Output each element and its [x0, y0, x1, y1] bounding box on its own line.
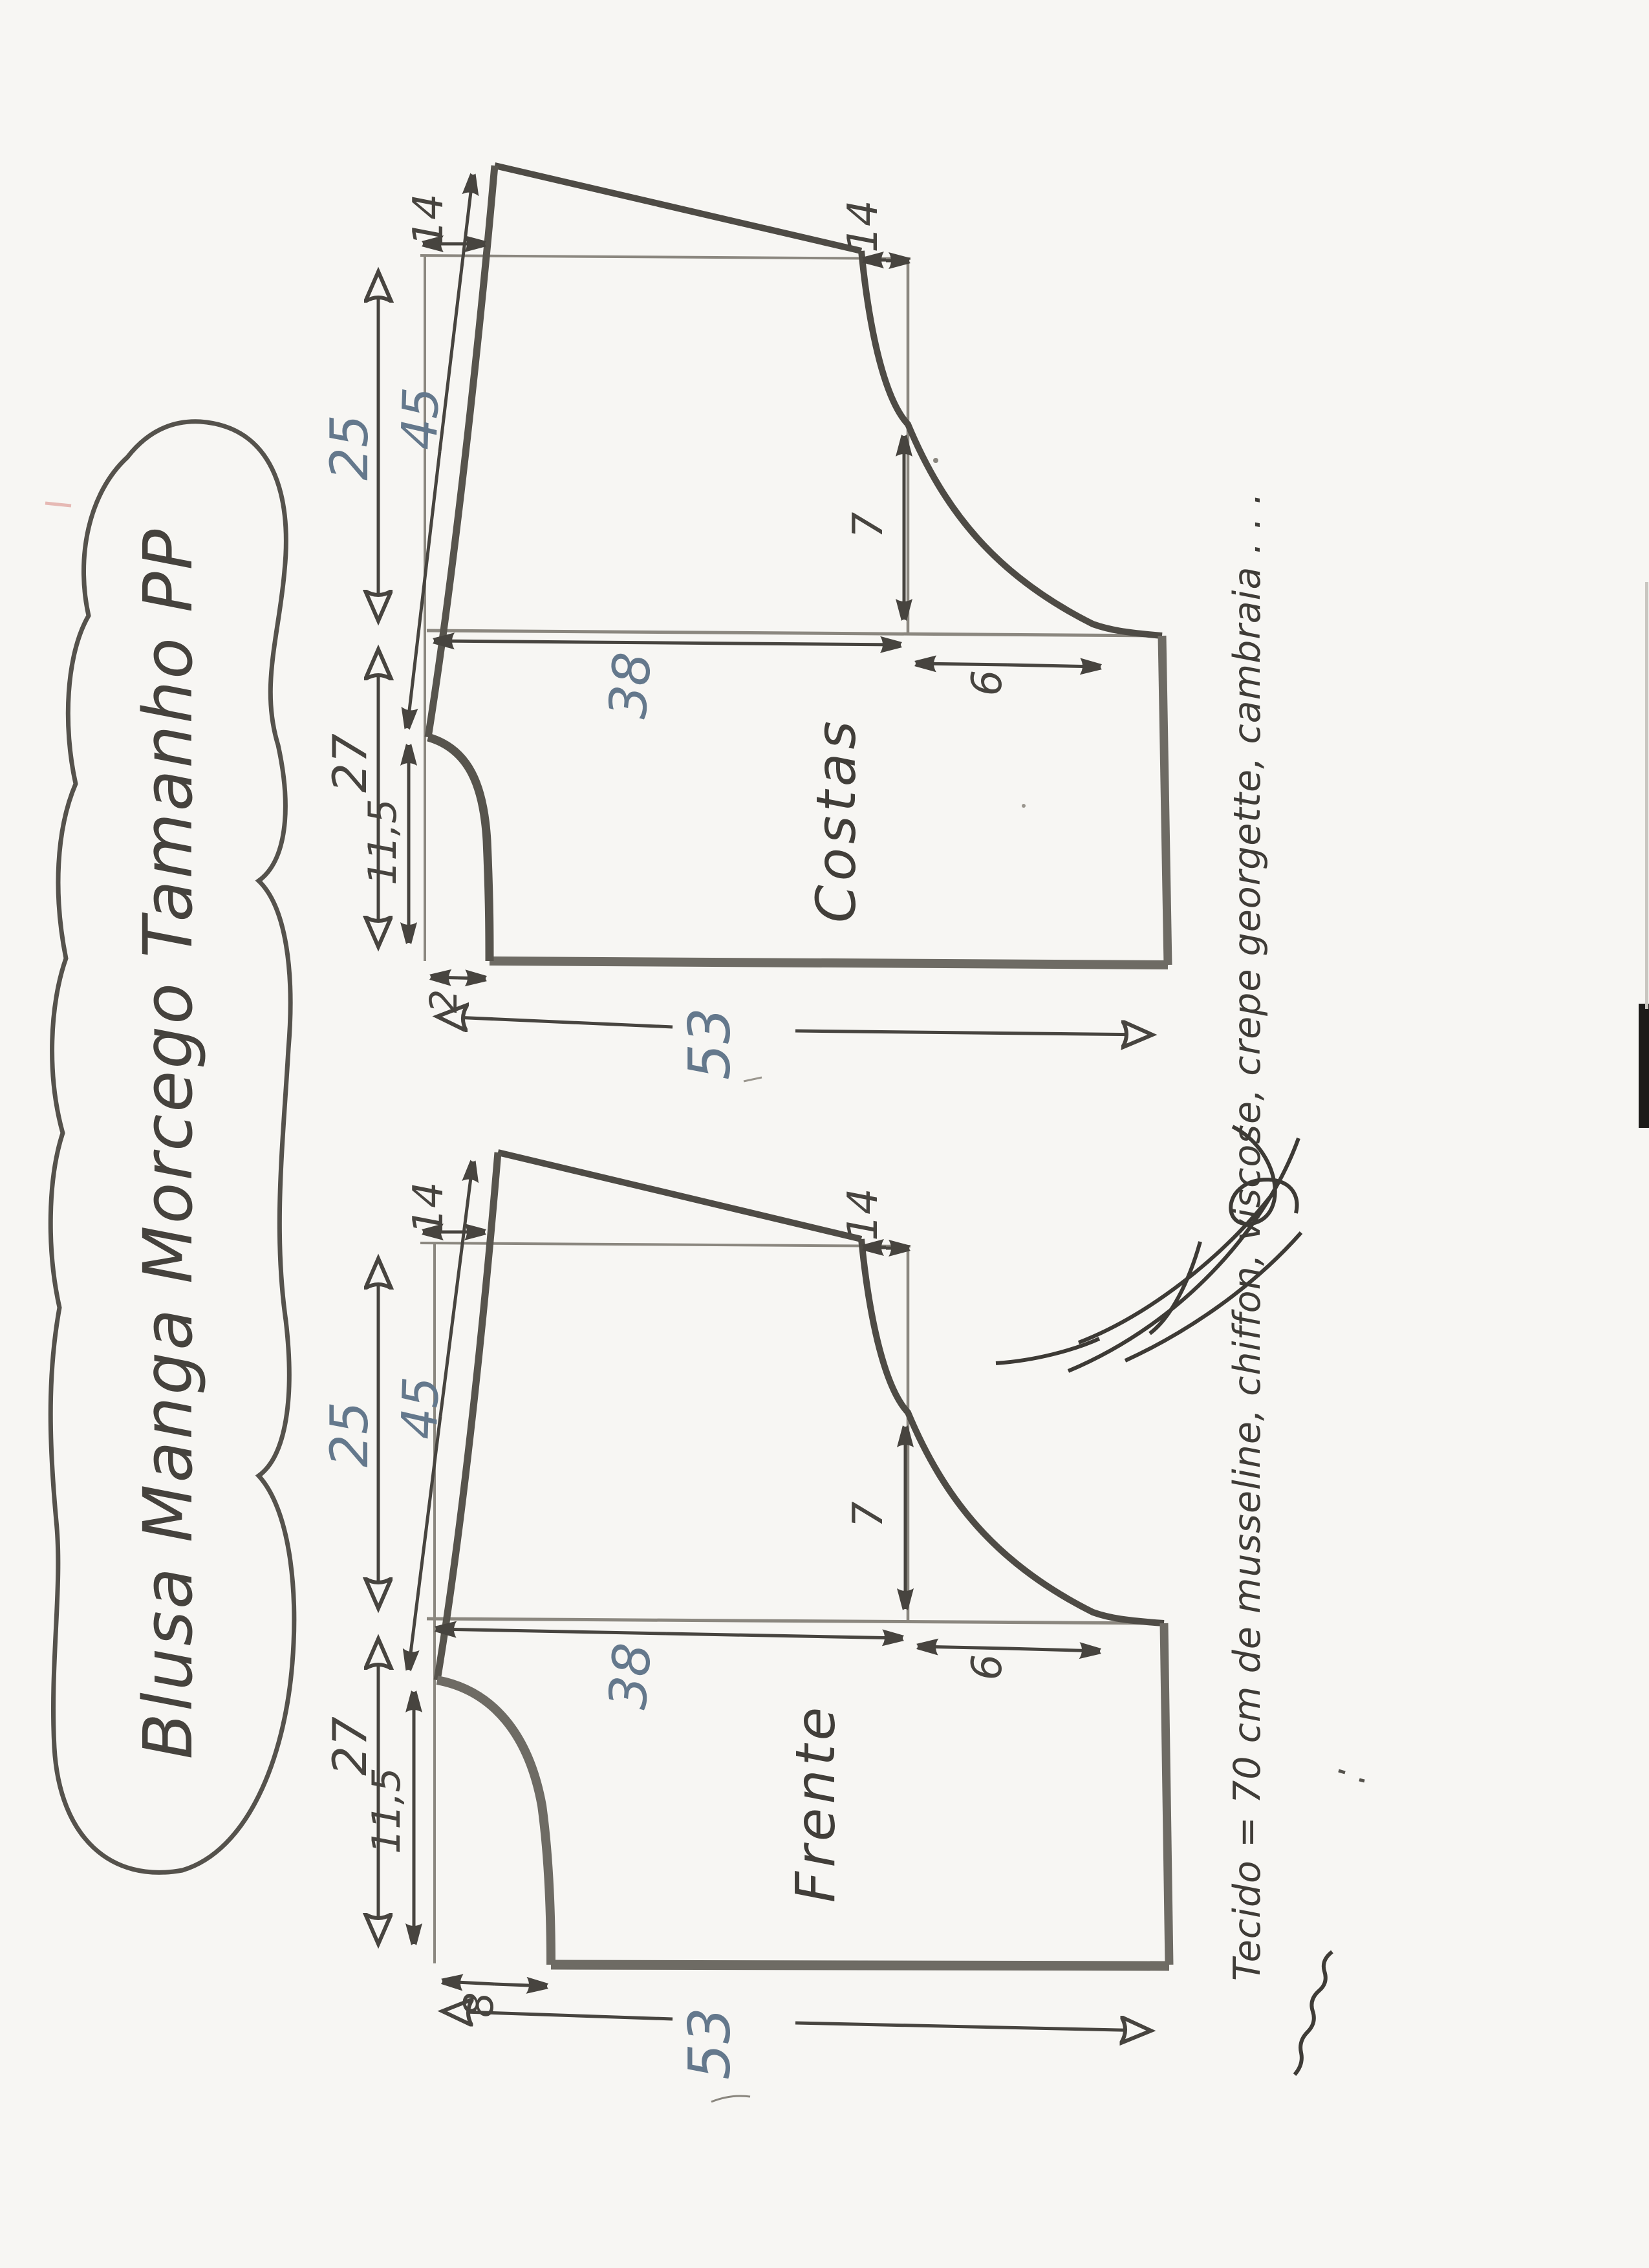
costas-label-7: 7 — [845, 512, 892, 538]
costas-piece-name: Costas — [804, 717, 868, 923]
costas-dim-2-a — [432, 977, 458, 978]
costas-label-14-left: 14 — [405, 193, 453, 246]
costas-neck-curve — [428, 737, 490, 961]
frente-label-8: 8 — [455, 1992, 502, 2017]
costas-sleeve-top-edge — [428, 166, 495, 737]
costas-dim-6-a — [917, 664, 1008, 665]
frente-shoulder-edge — [498, 1152, 861, 1239]
stray-dash — [744, 1077, 762, 1081]
frente-neck-curve — [437, 1680, 551, 1965]
speck — [1022, 804, 1026, 808]
frente-label-6: 6 — [964, 1654, 1011, 1681]
stray-dots — [1339, 1771, 1364, 1781]
frente-dim-53-b — [795, 2023, 1148, 2031]
fabric-note-underline-wavy — [1295, 1952, 1332, 2075]
frente-dim-6-b — [1008, 1648, 1099, 1651]
costas-side-edge — [1162, 636, 1168, 965]
frente-label-38: 38 — [598, 1641, 663, 1712]
frente-label-53: 53 — [676, 2007, 743, 2080]
frente-piece: 14 14 45 25 7 38 6 27 11,5 8 53 Frente — [319, 1152, 1169, 2080]
costas-dim-38-b — [666, 643, 900, 645]
scan-artifacts — [45, 458, 1649, 2102]
frente-side-edge — [1164, 1623, 1169, 1965]
frente-label-7: 7 — [845, 1501, 892, 1528]
frente-hem-edge — [551, 1965, 1169, 1966]
costas-dim-38-a — [435, 641, 666, 643]
frente-dim-6-a — [919, 1647, 1008, 1648]
costas-dim-53-b — [795, 1031, 1150, 1035]
frente-label-115: 11,5 — [364, 1767, 409, 1854]
pattern-drawing: Blusa Manga Morcego Tamanho PP Tecido = … — [0, 0, 1649, 2268]
costas-label-2: 2 — [422, 989, 466, 1013]
frente-label-27: 27 — [323, 1716, 377, 1776]
title-bubble: Blusa Manga Morcego Tamanho PP — [50, 422, 294, 1873]
costas-label-53: 53 — [676, 1008, 743, 1080]
costas-ref-top — [420, 255, 911, 259]
costas-label-27: 27 — [323, 733, 377, 793]
frente-ref-top — [420, 1243, 911, 1246]
scan-edge-line — [1645, 582, 1648, 1009]
costas-label-38: 38 — [598, 650, 663, 721]
signature-stroke — [1125, 1233, 1301, 1361]
costas-hem-edge — [490, 961, 1168, 965]
costas-label-14-right: 14 — [839, 200, 887, 252]
scan-edge-mark — [1639, 1004, 1649, 1128]
costas-dim-53-a — [440, 1017, 673, 1027]
frente-label-45: 45 — [390, 1376, 449, 1440]
costas-label-25: 25 — [319, 415, 380, 481]
frente-piece-name: Frente — [784, 1703, 847, 1903]
costas-outline — [428, 166, 1168, 965]
costas-underarm-line — [427, 631, 1162, 636]
frente-label-25: 25 — [319, 1401, 380, 1467]
costas-label-115: 11,5 — [360, 799, 405, 885]
frente-dimensions — [378, 1163, 1148, 2031]
costas-reference-lines — [420, 255, 1162, 961]
costas-label-45: 45 — [390, 386, 449, 451]
frente-dim-38-b — [666, 1634, 901, 1638]
frente-dim-8-b — [495, 1984, 546, 1986]
frente-label-14-left: 14 — [405, 1182, 453, 1234]
frente-underarm-line — [427, 1619, 1164, 1623]
fabric-note: Tecido = 70 cm de musseline, chiffon, vi… — [1226, 492, 1332, 2075]
costas-dimensions — [378, 176, 1150, 1035]
speck — [933, 458, 938, 463]
pattern-title: Blusa Manga Morcego Tamanho PP — [129, 528, 208, 1760]
pink-smudge — [45, 503, 71, 506]
frente-dim-38-a — [437, 1629, 666, 1634]
scanned-pattern-page: Blusa Manga Morcego Tamanho PP Tecido = … — [0, 0, 1649, 2268]
stray-dash — [711, 2096, 750, 2102]
costas-dim-2-b — [458, 978, 484, 978]
costas-label-6: 6 — [964, 670, 1011, 697]
costas-shoulder-edge — [495, 166, 861, 251]
costas-dim-6-b — [1008, 665, 1099, 667]
frente-dim-8-a — [444, 1982, 495, 1984]
frente-label-14-right: 14 — [839, 1188, 887, 1240]
costas-piece: 14 14 45 25 7 38 6 27 11,5 2 53 Costas — [319, 166, 1168, 1080]
